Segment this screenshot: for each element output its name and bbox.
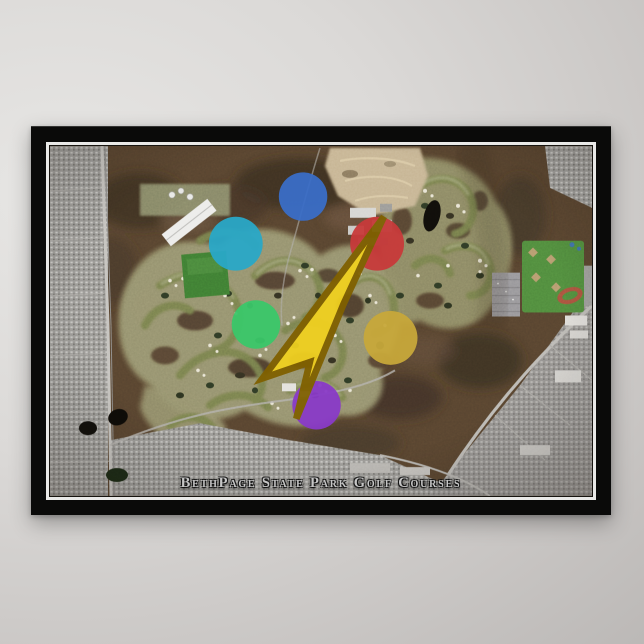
poster-pinstripe-border: BethPage State Park Golf Courses [46, 142, 596, 500]
poster: BethPage State Park Golf Courses [31, 126, 611, 515]
satellite-map: BethPage State Park Golf Courses [49, 145, 593, 497]
poster-title: BethPage State Park Golf Courses [50, 475, 592, 492]
product-photo-backdrop: BethPage State Park Golf Courses [0, 0, 644, 644]
publisher-compass-logo [59, 145, 593, 486]
